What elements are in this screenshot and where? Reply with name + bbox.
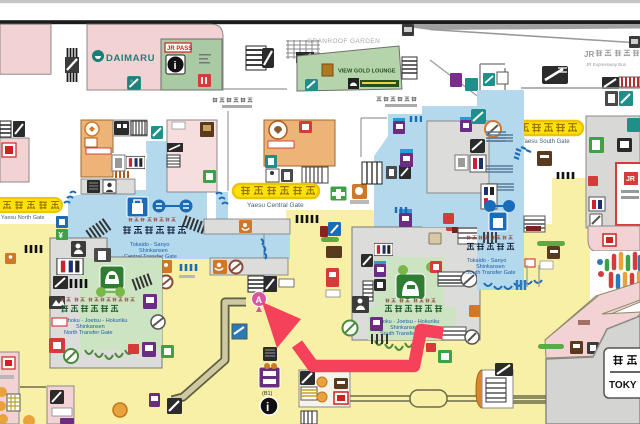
svg-text:DAIMARU: DAIMARU [106, 53, 155, 64]
svg-text:JR PASS: JR PASS [167, 46, 192, 52]
svg-text:JR: JR [626, 176, 635, 183]
svg-text:Yaesu Central Gate: Yaesu Central Gate [247, 202, 304, 209]
svg-text:i: i [266, 400, 269, 414]
svg-text:(B1): (B1) [262, 391, 273, 397]
svg-text:TOKY: TOKY [609, 380, 637, 391]
svg-text:Yaesu South Gate: Yaesu South Gate [521, 139, 570, 145]
svg-text:A: A [256, 295, 263, 305]
svg-text:i: i [174, 60, 177, 72]
svg-text:North Transfer Gate: North Transfer Gate [64, 330, 113, 336]
svg-text:VIEW GOLD LOUNGE: VIEW GOLD LOUNGE [338, 69, 396, 75]
svg-text:South Transfer Gate: South Transfer Gate [466, 270, 516, 276]
svg-text:JR: JR [584, 50, 594, 59]
svg-text:JR Expressway Bus: JR Expressway Bus [586, 62, 627, 67]
svg-text:¥: ¥ [59, 231, 64, 240]
svg-text:Yaesu North Gate: Yaesu North Gate [1, 215, 45, 221]
